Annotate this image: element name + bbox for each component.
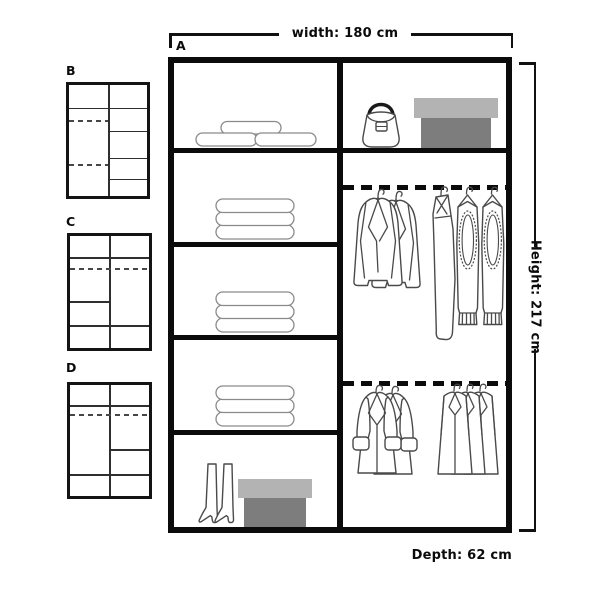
variant-b-diagram (66, 82, 150, 199)
variant-d-label: D (66, 360, 76, 375)
height-dimension-tick-bottom (519, 529, 536, 532)
width-dimension-line-right (411, 33, 513, 36)
height-dimension-line-top (534, 62, 537, 247)
variant-d-top-shelf (70, 405, 149, 407)
variant-b-label: B (66, 63, 76, 78)
jackets-on-hangers-illustration (346, 186, 431, 298)
variant-c-top-shelf (70, 257, 149, 259)
variant-d-vertical-divider (109, 385, 111, 496)
variant-c-hanging-rail (70, 268, 149, 270)
center-vertical-divider (337, 63, 343, 527)
wardrobe-layout-diagram: { "labels": { "width": "width: 180 cm", … (0, 0, 600, 600)
handbag-icon (360, 93, 402, 149)
storage-box-icon (414, 98, 498, 148)
duvet-rolls-illustration (194, 120, 318, 148)
variant-b-upper-rail (69, 120, 108, 122)
variant-d-diagram (67, 382, 152, 499)
shoe-box-icon (238, 479, 312, 527)
variant-c-label: C (66, 214, 75, 229)
height-dimension-line-bottom (534, 349, 537, 531)
variant-b-top-shelf (69, 108, 147, 110)
variant-b-right-shelf-3 (110, 179, 148, 181)
height-label: Height: 217 cm (528, 240, 543, 354)
coats-on-hangers-illustration (348, 383, 426, 481)
left-shelf-divider-2 (174, 242, 337, 247)
width-label: width: 180 cm (280, 26, 410, 41)
knitwear-on-hangers-illustration (427, 184, 505, 346)
width-dimension-tick-right (511, 33, 514, 48)
shirts-on-hangers-illustration (430, 383, 506, 478)
variant-a-label: A (176, 38, 186, 53)
variant-b-lower-rail (69, 164, 108, 166)
left-shelf-divider-3 (174, 335, 337, 340)
folded-clothes-illustration-1 (215, 198, 295, 240)
variant-b-right-shelf-2 (110, 158, 148, 160)
variant-c-diagram (67, 233, 152, 351)
variant-b-right-shelf-1 (110, 131, 148, 133)
left-shelf-divider-1 (174, 148, 337, 153)
depth-label: Depth: 62 cm (380, 548, 512, 563)
variant-d-hanging-rail (70, 414, 149, 416)
variant-d-right-shelf (111, 449, 150, 451)
left-shelf-divider-4 (174, 430, 337, 435)
width-dimension-line-left (169, 33, 279, 36)
variant-c-vertical-divider (109, 236, 111, 348)
variant-c-bottom-shelf (70, 325, 149, 327)
variant-d-bottom-shelf (70, 474, 149, 476)
folded-clothes-illustration-2 (215, 291, 295, 333)
wardrobe-a-frame (168, 57, 512, 533)
variant-c-left-shelf (70, 301, 109, 303)
folded-clothes-illustration-3 (215, 385, 295, 427)
